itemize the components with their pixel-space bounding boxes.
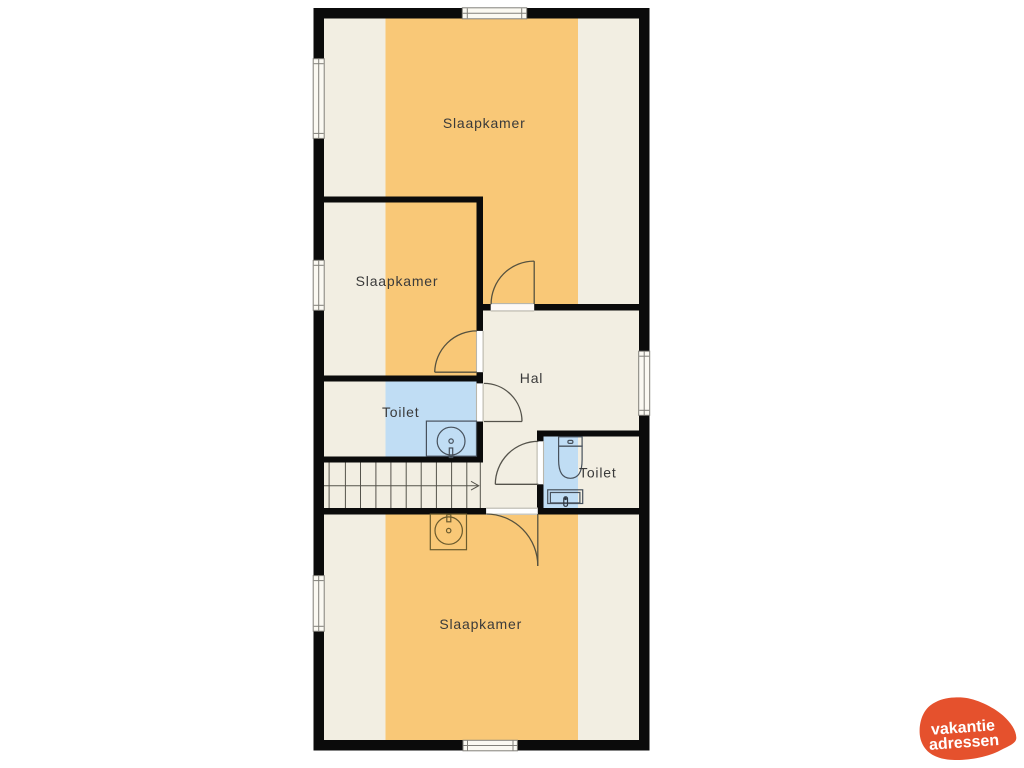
svg-text:Toilet: Toilet [579, 465, 616, 481]
svg-text:Hal: Hal [520, 370, 543, 386]
svg-text:Toilet: Toilet [382, 404, 419, 420]
svg-text:Slaapkamer: Slaapkamer [443, 115, 526, 131]
svg-text:Slaapkamer: Slaapkamer [356, 273, 439, 289]
svg-text:Slaapkamer: Slaapkamer [439, 616, 522, 632]
